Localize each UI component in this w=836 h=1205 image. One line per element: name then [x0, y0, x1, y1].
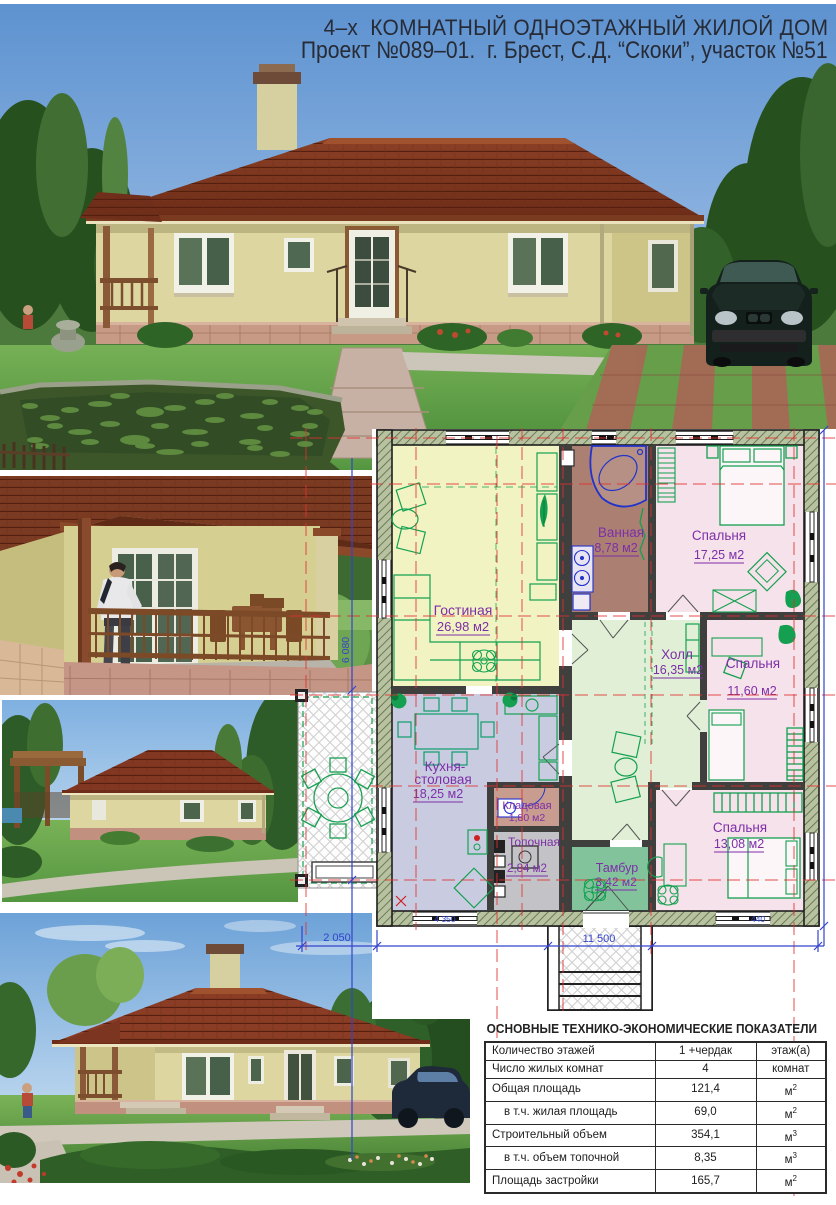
svg-text:Тамбур: Тамбур: [596, 861, 638, 875]
svg-text:2,84 м2: 2,84 м2: [507, 863, 547, 875]
svg-text:2 050: 2 050: [323, 932, 351, 944]
svg-text:6 080: 6 080: [340, 637, 352, 663]
svg-text:11 500: 11 500: [583, 933, 616, 945]
svg-text:8,78 м2: 8,78 м2: [594, 541, 637, 555]
svg-text:13,08 м2: 13,08 м2: [714, 837, 764, 851]
svg-text:4 350: 4 350: [434, 914, 456, 924]
svg-text:11,60 м2: 11,60 м2: [727, 684, 776, 698]
svg-text:26,98 м2: 26,98 м2: [437, 619, 489, 634]
svg-text:Спальня: Спальня: [713, 820, 767, 835]
svg-text:Спальня: Спальня: [692, 528, 746, 543]
svg-text:Топочная: Топочная: [508, 835, 560, 849]
svg-text:Кладовая: Кладовая: [502, 800, 551, 812]
svg-text:Холл: Холл: [661, 647, 693, 662]
svg-text:16,35 м2: 16,35 м2: [653, 663, 703, 677]
svg-text:17,25 м2: 17,25 м2: [694, 548, 744, 562]
svg-text:18,25 м2: 18,25 м2: [413, 787, 463, 801]
svg-text:440: 440: [751, 914, 765, 924]
svg-text:Ванная: Ванная: [598, 525, 644, 540]
svg-text:столовая: столовая: [414, 772, 471, 787]
svg-text:Спальня: Спальня: [726, 656, 780, 671]
svg-text:1,80 м2: 1,80 м2: [509, 812, 546, 824]
svg-text:3,42 м2: 3,42 м2: [595, 875, 637, 889]
